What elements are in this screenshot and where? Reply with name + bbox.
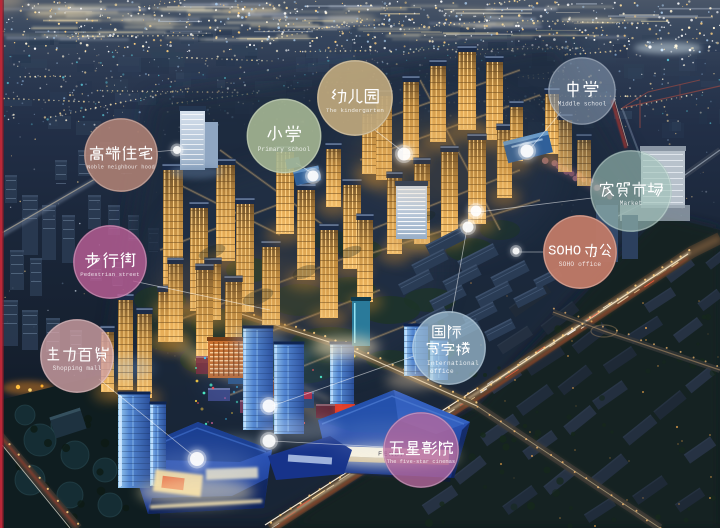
svg-text:Noble neighbour hood: Noble neighbour hood: [87, 164, 155, 170]
svg-text:Primary school: Primary school: [258, 146, 311, 153]
svg-text:SOHO: SOHO: [548, 245, 581, 260]
svg-text:office: office: [430, 368, 454, 375]
svg-text:International: International: [427, 360, 479, 367]
svg-text:Pedestrian street: Pedestrian street: [80, 271, 140, 278]
svg-text:The five-star cinemas: The five-star cinemas: [387, 459, 456, 465]
svg-text:Market: Market: [620, 200, 643, 207]
svg-text:The kindergarten: The kindergarten: [326, 107, 384, 114]
svg-text:Middle school: Middle school: [558, 101, 607, 108]
svg-text:Shopping mall: Shopping mall: [53, 365, 102, 372]
svg-text:SOHO office: SOHO office: [559, 261, 602, 268]
